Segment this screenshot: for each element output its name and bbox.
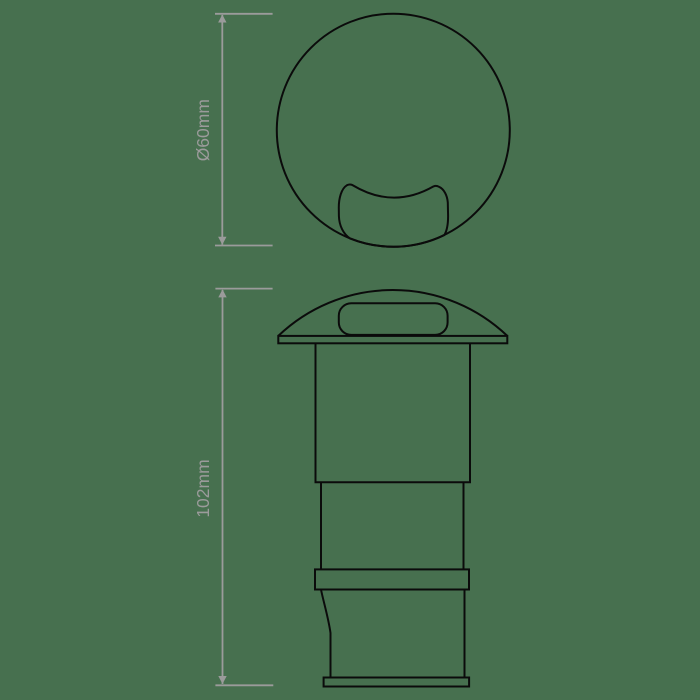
svg-text:102mm: 102mm bbox=[193, 459, 213, 517]
svg-text:Ø60mm: Ø60mm bbox=[193, 99, 213, 161]
